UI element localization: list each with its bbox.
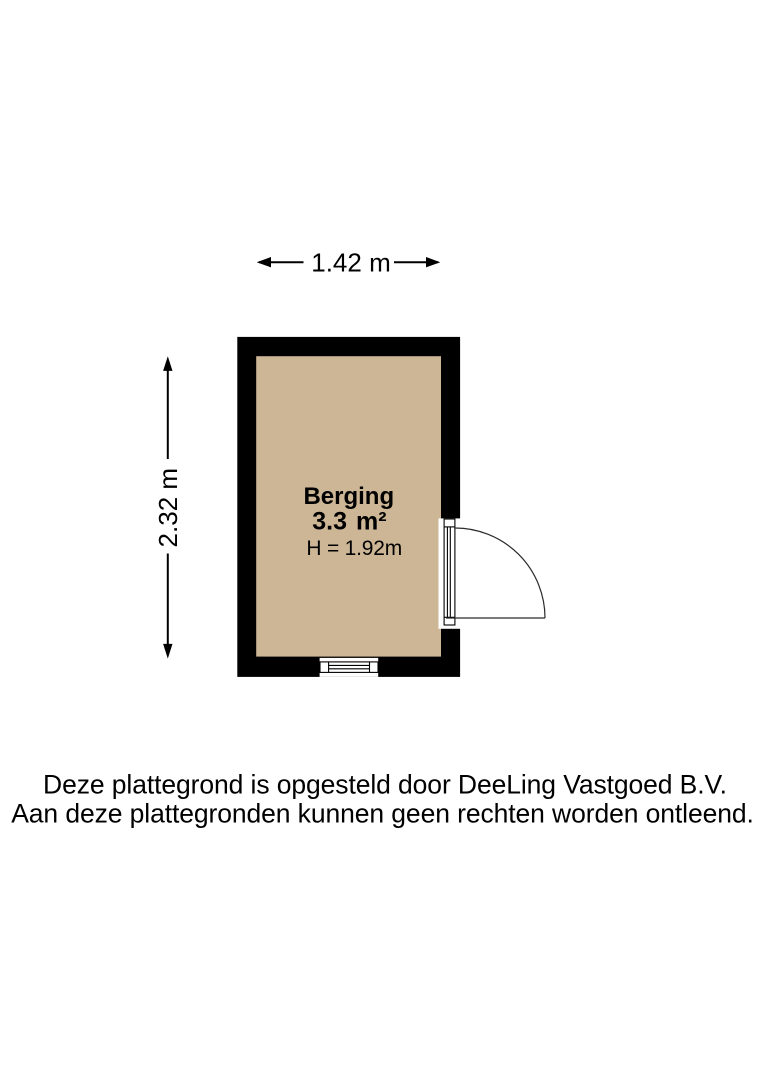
svg-text:Aan deze plattegronden kunnen: Aan deze plattegronden kunnen geen recht… xyxy=(11,798,754,828)
svg-text:Deze plattegrond is opgesteld: Deze plattegrond is opgesteld door DeeLi… xyxy=(43,770,727,800)
svg-text:1.42 m: 1.42 m xyxy=(311,248,391,278)
svg-text:2.32 m: 2.32 m xyxy=(153,468,183,548)
svg-text:Berging: Berging xyxy=(303,483,394,510)
svg-text:3.3 m²: 3.3 m² xyxy=(312,508,386,536)
svg-text:H = 1.92m: H = 1.92m xyxy=(306,537,402,560)
